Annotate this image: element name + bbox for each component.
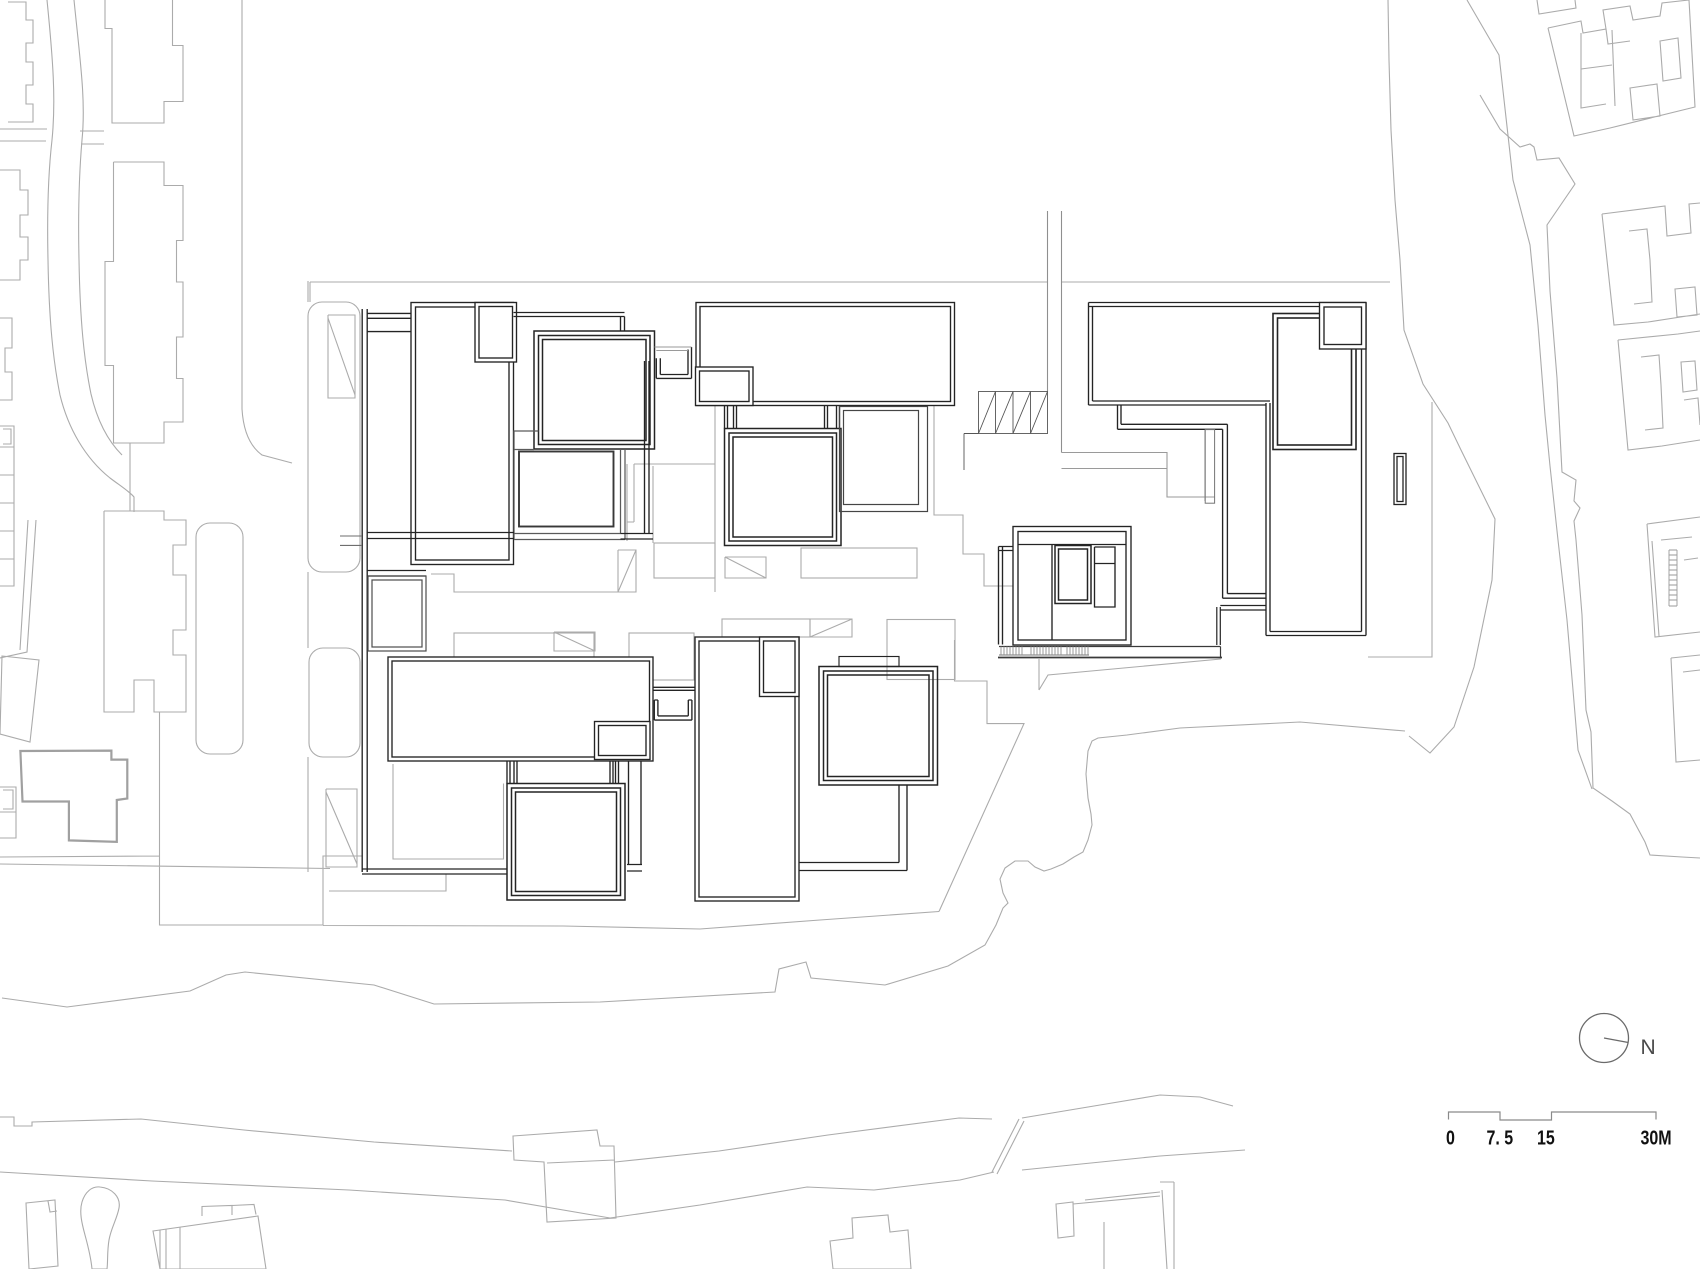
svg-text:15: 15 [1537, 1127, 1555, 1149]
svg-text:N: N [1641, 1036, 1656, 1059]
svg-text:7. 5: 7. 5 [1487, 1127, 1514, 1149]
svg-text:0: 0 [1446, 1127, 1455, 1149]
svg-text:30M: 30M [1641, 1127, 1672, 1149]
